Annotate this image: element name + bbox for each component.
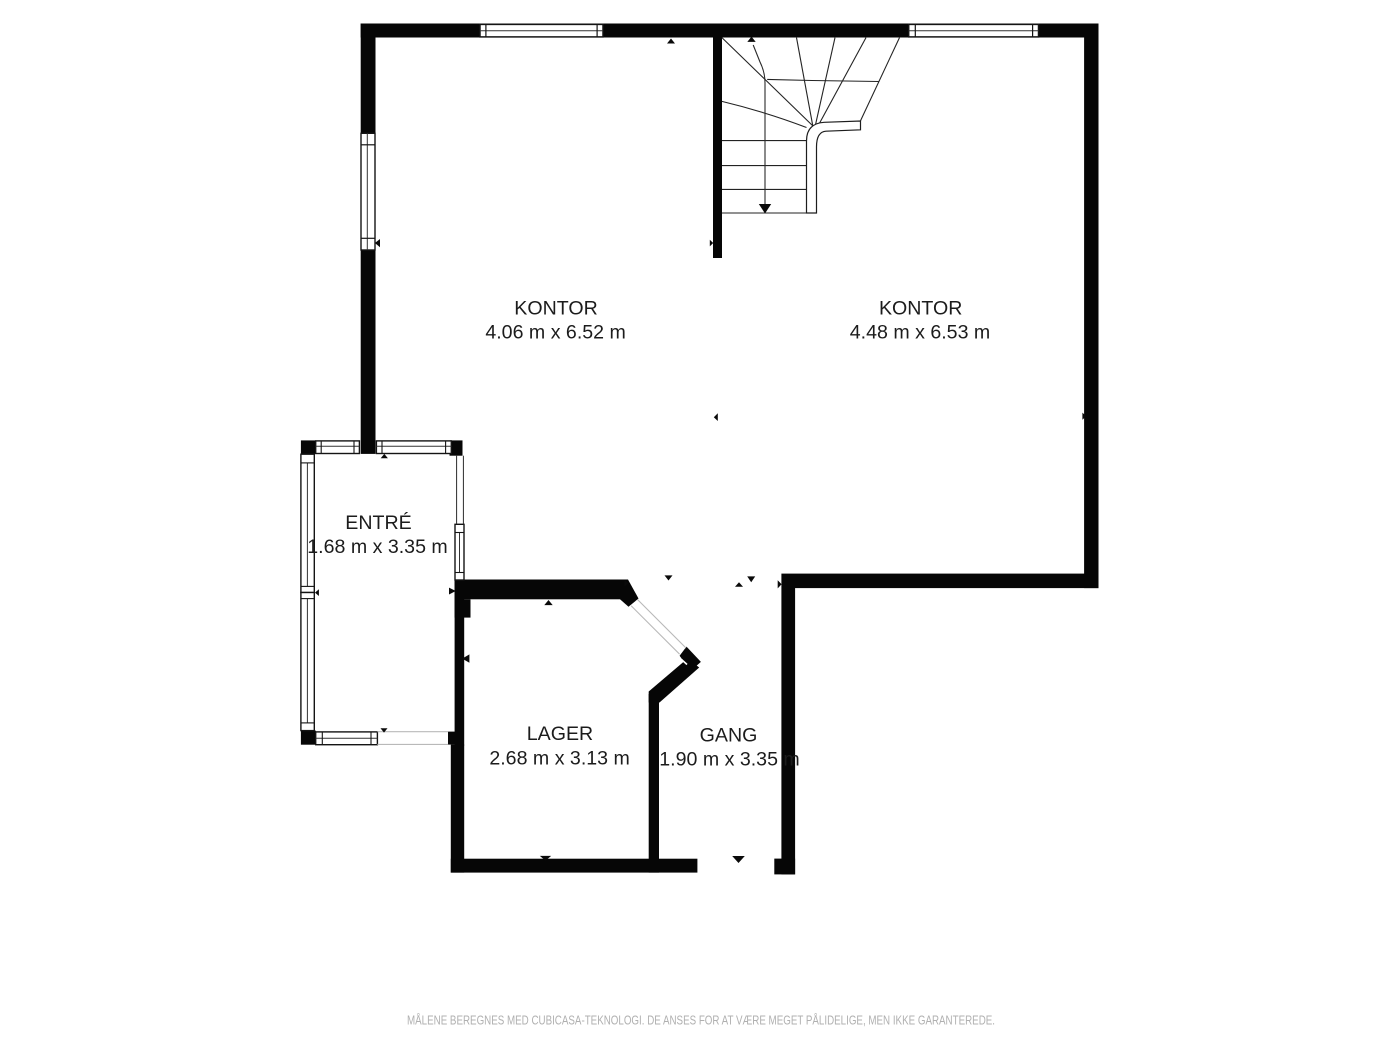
svg-text:LAGER: LAGER [527, 723, 593, 745]
svg-text:KONTOR: KONTOR [514, 298, 597, 320]
svg-text:KONTOR: KONTOR [879, 298, 962, 320]
svg-text:4.48 m x 6.53 m: 4.48 m x 6.53 m [850, 322, 991, 344]
svg-text:1.90 m x 3.35 m: 1.90 m x 3.35 m [659, 749, 800, 771]
svg-text:GANG: GANG [700, 725, 758, 747]
svg-text:1.68 m x 3.35 m: 1.68 m x 3.35 m [307, 536, 448, 558]
svg-text:MÅLENE BEREGNES MED CUBICASA-T: MÅLENE BEREGNES MED CUBICASA-TEKNOLOGI. … [407, 1013, 995, 1028]
svg-text:4.06 m x 6.52 m: 4.06 m x 6.52 m [485, 322, 626, 344]
svg-text:ENTRÉ: ENTRÉ [345, 511, 411, 534]
svg-text:2.68 m x 3.13 m: 2.68 m x 3.13 m [489, 748, 630, 770]
